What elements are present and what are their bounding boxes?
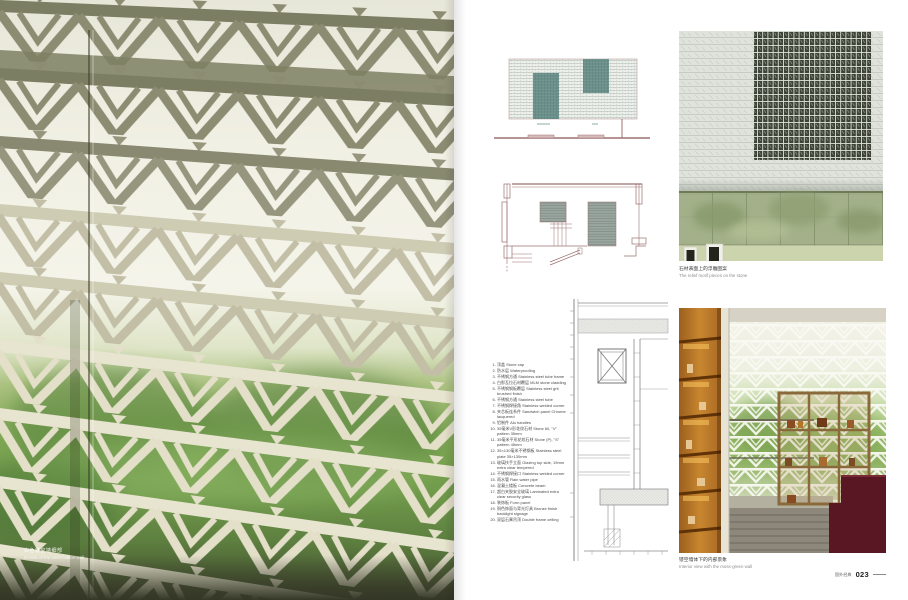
left-caption-zh: 白色镂空墙细部 [24, 548, 224, 555]
legend-item: 双层石膏吊顶 Double frame ceiling [497, 517, 566, 522]
wall-detail-drawing [548, 293, 670, 569]
page-number: 023 [856, 570, 869, 579]
facade-caption-en: The relief motif pieces on the stone [679, 273, 869, 280]
legend-item: 不锈钢焊接角 Stainless welded corner [497, 403, 566, 408]
materials-legend: 顶盖 Stone cap 防水层 Waterproofing 不锈钢方通 Sta… [488, 362, 566, 523]
legend-item: 铝制件 Alu handles [497, 420, 566, 425]
legend-item: 35×130毫米不锈钢板 Stainless steel plate 35×13… [497, 448, 566, 459]
legend-item: 不锈钢焊接口 Stainless welded corner [497, 471, 566, 476]
page-footer: 国外经典 023 [0, 570, 886, 579]
legend-item: 防水层 Waterproofing [497, 368, 566, 373]
left-photo-caption: 白色镂空墙细部 Details of the white lattice wal… [24, 548, 224, 562]
legend-item: 装饰板 Form panel [497, 500, 566, 505]
lattice-photo-art [0, 0, 454, 600]
wall-shelving [679, 308, 729, 553]
materials-legend-list: 顶盖 Stone cap 防水层 Waterproofing 不锈钢方通 Sta… [488, 362, 566, 522]
legend-item: 顶盖 Stone cap [497, 362, 566, 367]
elevation-drawing [492, 48, 654, 170]
facade-caption-zh: 石材表面上的浮雕图案 [679, 266, 869, 273]
legend-item: 夹芯板连系件 Sandwich panel Chrome lacquered [497, 409, 566, 420]
legend-item: 白那瓦拉石材覆层 MLM stone cladding [497, 380, 566, 385]
legend-item: 35毫米平形花纹石材 Stone (P), "S" pattern 45mm [497, 437, 566, 448]
legend-item: 不锈钢方通 Stainless steel tube frame [497, 374, 566, 379]
facade-photo-caption: 石材表面上的浮雕图案 The relief motif pieces on th… [679, 266, 869, 280]
book-spread: 白色镂空墙细部 Details of the white lattice wal… [0, 0, 908, 600]
footer-section-label: 国外经典 [835, 572, 852, 578]
left-caption-en: Details of the white lattice wall [24, 555, 224, 562]
footer-rule [873, 574, 886, 575]
legend-item: 雨水管 Rain water pipe [497, 477, 566, 482]
interior-photo [679, 308, 886, 553]
legend-item: 玻璃扶手立面 Glazing top side, 19mm extra clea… [497, 460, 566, 471]
left-lattice-photo [0, 0, 454, 600]
legend-item: 铜色饰面与背光灯具 Bronze finish backlight signag… [497, 506, 566, 517]
interior-caption-zh: 镂空墙体下的内部景象 [679, 557, 869, 564]
facade-photo [679, 31, 883, 261]
section-plan-drawing [492, 176, 654, 276]
legend-item: 35毫米V形花纹石材 Stone 60, "V" pattern 35mm [497, 426, 566, 437]
page-gutter-shadow [444, 0, 466, 600]
interior-photo-caption: 镂空墙体下的内部景象 Interior view with the moss-g… [679, 557, 869, 571]
legend-item: 超白夹胶安全玻璃 Laminated extra clear security … [497, 489, 566, 500]
legend-item: 不锈钢钢板覆层 Stainless steel grit brushed fin… [497, 386, 566, 397]
legend-item: 不锈钢方通 Stainless steel tube [497, 397, 566, 402]
legend-item: 混凝土楼板 Concrete beam [497, 483, 566, 488]
